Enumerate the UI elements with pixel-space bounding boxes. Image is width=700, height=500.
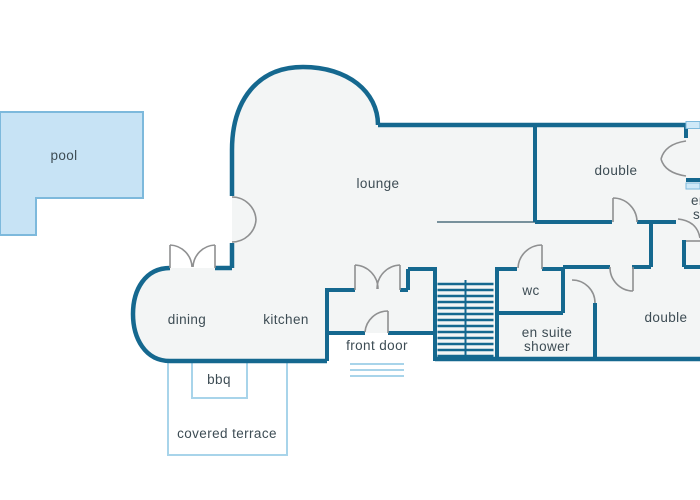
floor-plan: pool lounge double double dining kitchen… — [0, 0, 700, 500]
floor-plan-canvas: pool lounge double double dining kitchen… — [0, 0, 700, 500]
label-clipped-ensuite-line1: en suite — [691, 193, 700, 208]
pool-shape — [0, 112, 143, 235]
label-dining: dining — [168, 312, 206, 327]
entrance-steps — [350, 364, 404, 376]
label-ensuite-shower-line1: en suite — [522, 325, 572, 340]
label-double-upper: double — [595, 163, 638, 178]
building-footprint — [133, 67, 700, 361]
label-wc: wc — [521, 283, 539, 298]
label-lounge: lounge — [357, 176, 400, 191]
dining-french-doors — [170, 245, 215, 268]
top-right-window — [686, 122, 700, 129]
label-front-door: front door — [346, 338, 408, 353]
label-double-lower: double — [645, 310, 688, 325]
label-bbq: bbq — [207, 372, 231, 387]
label-covered-terrace: covered terrace — [177, 426, 277, 441]
label-clipped-ensuite-line2: shower — [693, 207, 700, 222]
label-ensuite-shower-line2: shower — [524, 339, 570, 354]
label-pool: pool — [50, 148, 77, 163]
ensuite-window — [686, 183, 700, 189]
label-kitchen: kitchen — [263, 312, 309, 327]
